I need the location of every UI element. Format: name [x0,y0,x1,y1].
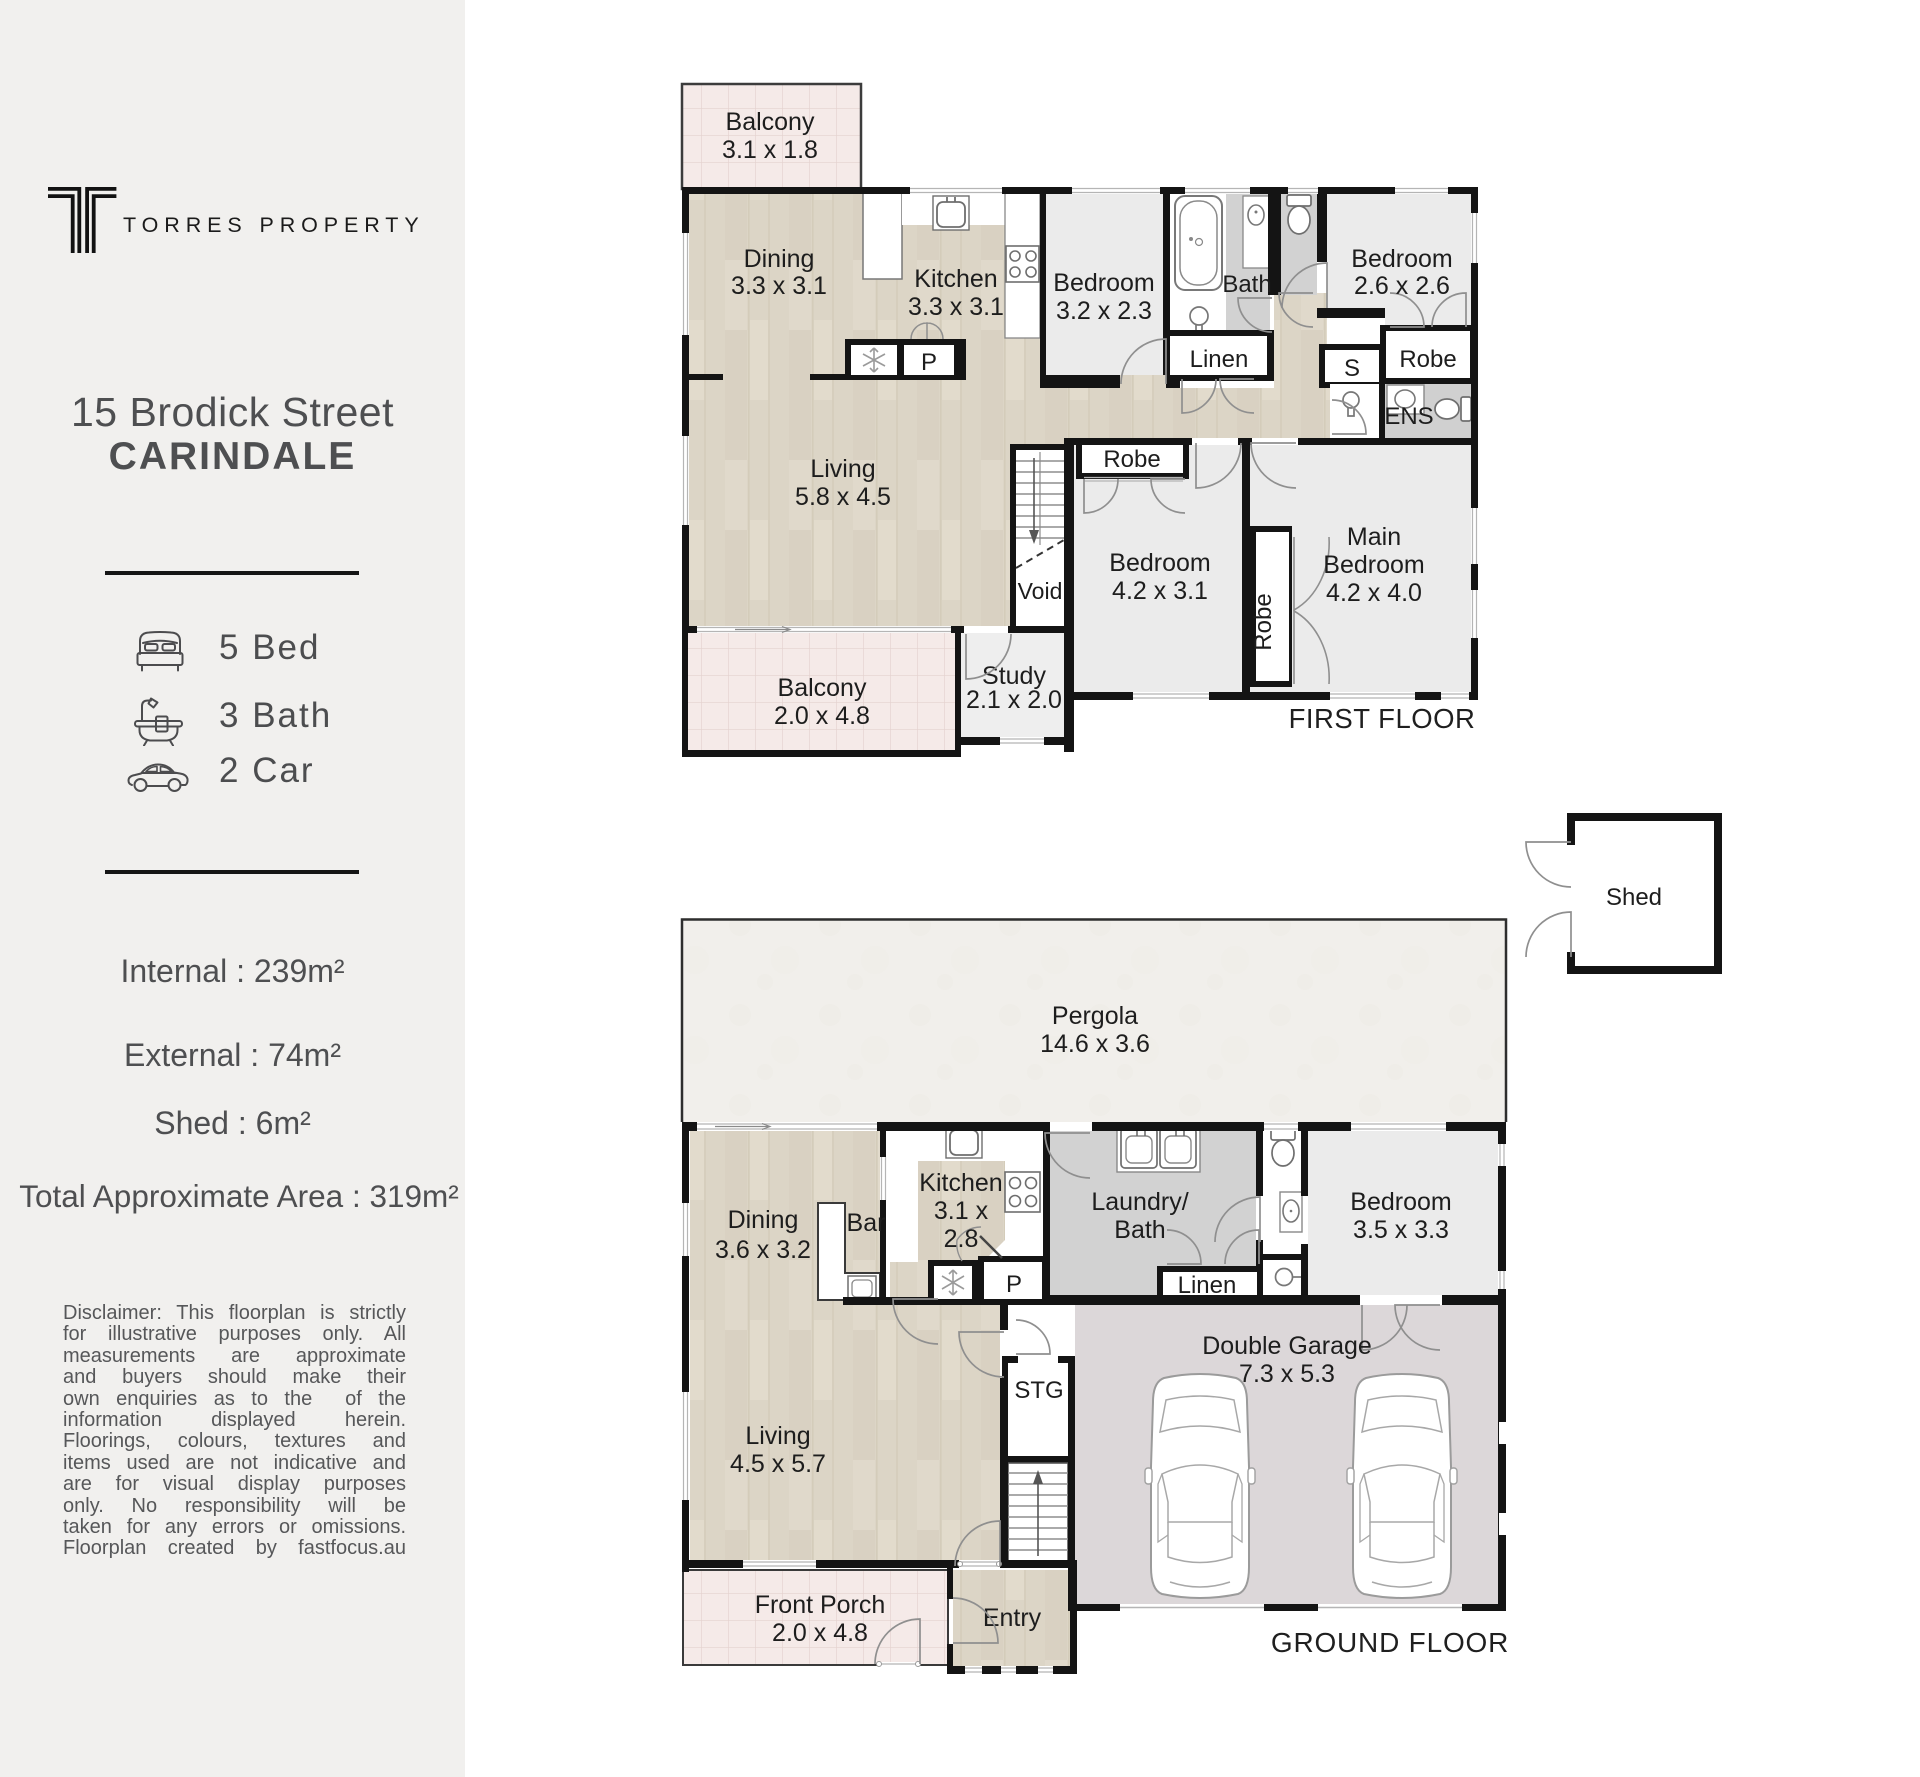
svg-text:2.0 x 4.8: 2.0 x 4.8 [772,1619,868,1647]
svg-text:Robe: Robe [1103,446,1160,473]
svg-text:Void: Void [1018,578,1063,604]
svg-text:Bedroom: Bedroom [1323,551,1424,579]
svg-text:3.2 x 2.3: 3.2 x 2.3 [1056,297,1152,325]
svg-text:14.6 x 3.6: 14.6 x 3.6 [1040,1030,1150,1058]
svg-text:2.1 x 2.0: 2.1 x 2.0 [966,686,1062,714]
svg-text:Shed: Shed [1606,884,1662,911]
svg-text:Living: Living [745,1422,810,1450]
svg-text:2.6 x 2.6: 2.6 x 2.6 [1354,272,1450,300]
svg-text:3.3 x 3.1: 3.3 x 3.1 [908,293,1004,321]
svg-text:Robe: Robe [1250,593,1277,650]
svg-text:Kitchen: Kitchen [914,265,997,293]
svg-text:3.1 x: 3.1 x [934,1197,989,1225]
svg-text:Balcony: Balcony [778,674,867,702]
svg-text:5.8 x 4.5: 5.8 x 4.5 [795,483,891,511]
svg-text:Bedroom: Bedroom [1350,1188,1451,1216]
svg-text:FIRST FLOOR: FIRST FLOOR [1289,703,1476,734]
svg-text:4.5 x 5.7: 4.5 x 5.7 [730,1450,826,1478]
svg-text:Bedroom: Bedroom [1351,245,1452,273]
svg-text:S: S [1344,355,1360,382]
svg-text:Living: Living [810,455,875,483]
svg-text:Linen: Linen [1190,346,1249,373]
svg-text:Dining: Dining [728,1206,799,1234]
svg-text:Bar: Bar [847,1209,886,1237]
svg-text:Robe: Robe [1399,346,1456,373]
svg-text:Front Porch: Front Porch [755,1591,886,1619]
svg-text:Kitchen: Kitchen [919,1169,1002,1197]
svg-text:Main: Main [1347,523,1401,551]
svg-text:Dining: Dining [744,245,815,273]
svg-text:Bedroom: Bedroom [1053,269,1154,297]
svg-text:2.8: 2.8 [944,1225,979,1253]
svg-text:3.3 x 3.1: 3.3 x 3.1 [731,272,827,300]
svg-text:Linen: Linen [1178,1272,1237,1299]
svg-text:Bath: Bath [1222,271,1271,298]
svg-text:Double Garage: Double Garage [1202,1332,1372,1360]
svg-text:P: P [921,349,937,376]
svg-text:P: P [1006,1271,1022,1298]
svg-text:Laundry/: Laundry/ [1091,1188,1188,1216]
svg-text:4.2 x 4.0: 4.2 x 4.0 [1326,579,1422,607]
svg-text:Entry: Entry [983,1604,1042,1632]
svg-text:7.3 x 5.3: 7.3 x 5.3 [1239,1360,1335,1388]
svg-text:3.5 x 3.3: 3.5 x 3.3 [1353,1216,1449,1244]
svg-text:3.6 x 3.2: 3.6 x 3.2 [715,1236,811,1264]
svg-text:3.1 x 1.8: 3.1 x 1.8 [722,136,818,164]
svg-text:STG: STG [1014,1377,1063,1404]
svg-text:Pergola: Pergola [1052,1002,1138,1030]
svg-text:Balcony: Balcony [726,108,815,136]
svg-text:Bedroom: Bedroom [1109,549,1210,577]
svg-text:GROUND FLOOR: GROUND FLOOR [1271,1627,1509,1658]
svg-text:ENS: ENS [1384,403,1433,430]
svg-text:2.0 x 4.8: 2.0 x 4.8 [774,702,870,730]
svg-text:4.2 x 3.1: 4.2 x 3.1 [1112,577,1208,605]
svg-text:Bath: Bath [1114,1216,1165,1244]
